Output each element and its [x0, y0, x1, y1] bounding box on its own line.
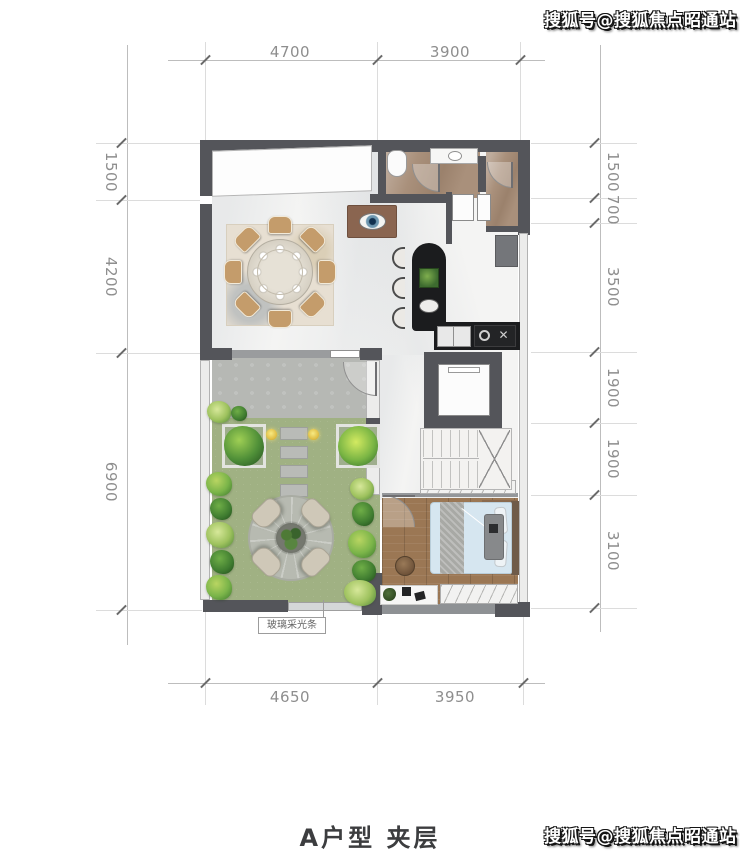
- wall-bottom-right-corner: [495, 602, 530, 617]
- terrace-sliding-door: [330, 350, 360, 358]
- bush: [206, 575, 232, 600]
- stair-winders: [479, 430, 510, 488]
- bush: [352, 560, 376, 582]
- extension-line: [531, 423, 637, 424]
- planter-tree-right: [338, 426, 378, 466]
- bush: [210, 550, 234, 574]
- extension-line: [205, 612, 206, 705]
- counter-cabinet: [437, 326, 471, 347]
- pipe-shaft: [477, 194, 491, 221]
- wall-left-window-gap: [200, 196, 212, 204]
- dim-label-right-6: 3100: [604, 521, 622, 581]
- wall-bath-divider: [378, 150, 386, 198]
- dimension-line-right: [600, 45, 601, 632]
- bush: [210, 498, 232, 520]
- pouf: [395, 556, 415, 576]
- dim-label-right-4: 1900: [604, 358, 622, 418]
- decor-plate: [359, 213, 386, 230]
- glass-strip-label: 玻璃采光条: [258, 617, 326, 634]
- page-title: A户型 夹层: [0, 818, 740, 853]
- bush: [206, 522, 234, 548]
- dim-label-bottom-1: 4650: [260, 688, 320, 706]
- dim-label-bottom-2: 3950: [425, 688, 485, 706]
- toilet: [387, 150, 407, 177]
- dim-label-left-2: 4200: [102, 247, 120, 307]
- dimension-line-bottom: [168, 683, 545, 684]
- desk-item: [402, 587, 411, 596]
- dining-chair: [224, 260, 242, 284]
- floor-plan-page: 搜狐号@搜狐焦点昭通站 搜狐号@搜狐焦点昭通站 4700 3900 4650 3…: [0, 0, 740, 856]
- bed-tray: [484, 514, 504, 560]
- right-window-band: [519, 233, 528, 605]
- extension-line: [531, 495, 637, 496]
- bed-headboard: [511, 501, 519, 575]
- bathroom-door-leaf: [438, 164, 440, 192]
- wall-mid-right: [360, 348, 382, 360]
- bush: [206, 472, 232, 496]
- bush: [231, 406, 247, 421]
- watermark-top: 搜狐号@搜狐焦点昭通站: [544, 6, 737, 31]
- tray-item: [489, 524, 498, 533]
- extension-line: [523, 612, 524, 705]
- dimension-line-left: [127, 45, 128, 645]
- bush: [350, 478, 374, 500]
- dining-chair: [268, 216, 292, 234]
- stepping-stone: [280, 446, 308, 459]
- stair-treads-upper: [423, 430, 479, 457]
- bush: [352, 502, 374, 526]
- bed-blanket: [440, 502, 464, 574]
- wall-right-upper: [518, 140, 530, 235]
- fridge: [495, 235, 518, 267]
- extension-line: [531, 608, 637, 609]
- cabinet-divider: [453, 326, 454, 347]
- extension-line: [377, 612, 378, 705]
- dim-label-right-5: 1900: [604, 429, 622, 489]
- bedroom-window-seat: [440, 584, 518, 604]
- dimension-line-top: [168, 60, 545, 61]
- bedroom-bottom-wall: [382, 604, 495, 614]
- elevator-door: [448, 367, 480, 373]
- extension-line: [531, 352, 637, 353]
- stepping-stone: [280, 465, 308, 478]
- dim-label-right-3: 3500: [604, 257, 622, 317]
- extension-line: [96, 610, 202, 611]
- dim-label-top-1: 4700: [260, 43, 320, 61]
- dim-label-right-2: 700: [604, 180, 622, 240]
- void-skylight: [212, 145, 372, 197]
- dining-chair: [318, 260, 336, 284]
- bedroom-door-leaf: [383, 495, 415, 497]
- bush: [348, 530, 376, 558]
- stair-treads-lower: [423, 461, 479, 488]
- island-planter: [419, 268, 439, 288]
- garden-lamp: [266, 429, 277, 440]
- dim-label-left-3: 6900: [102, 452, 120, 512]
- dining-table: [247, 239, 313, 305]
- island-sink: [419, 299, 439, 313]
- dining-chair: [268, 310, 292, 328]
- garden-lamp: [308, 429, 319, 440]
- planter-tree-left: [224, 426, 264, 466]
- wall-mid-left: [200, 348, 232, 360]
- wall-shower-bottom: [486, 226, 518, 232]
- stepping-stone: [280, 427, 308, 440]
- basin: [448, 151, 462, 161]
- wall-bath-shower-divider: [478, 156, 486, 192]
- terrace-wall-track: [232, 350, 330, 358]
- dim-label-top-2: 3900: [420, 43, 480, 61]
- wall-left: [200, 152, 212, 355]
- stair-rail: [423, 458, 479, 459]
- shower-door-leaf: [511, 162, 513, 188]
- fire-pit-planter: [276, 523, 306, 553]
- extension-line: [96, 353, 202, 354]
- wall-garden-bottom: [203, 600, 288, 612]
- bush: [344, 580, 376, 606]
- bush: [207, 401, 231, 423]
- terrace-door-leaf: [375, 362, 377, 396]
- burner-cross: ✕: [497, 329, 510, 342]
- wall-below-bath: [370, 194, 450, 203]
- burner: [479, 330, 490, 341]
- annotation-leader-line: [323, 600, 324, 618]
- dim-label-left-1: 1500: [102, 142, 120, 202]
- pipe-shaft: [452, 194, 474, 221]
